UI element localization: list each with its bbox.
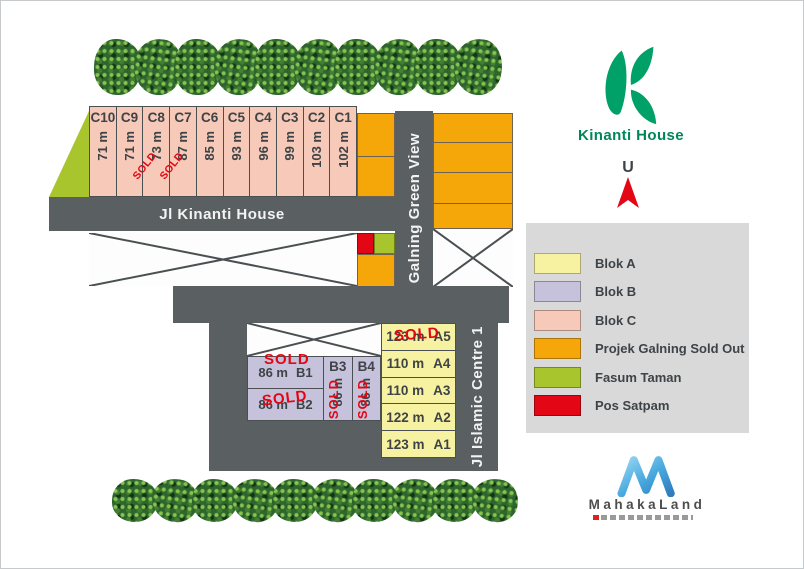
lot-size: 102 m xyxy=(336,131,351,168)
lot-size: 85 m xyxy=(202,131,217,161)
soldout-cell xyxy=(434,143,512,173)
lot-id: C3 xyxy=(281,110,298,125)
lot-id: C8 xyxy=(148,110,165,125)
lot-id: A3 xyxy=(433,383,450,398)
lot-id: A2 xyxy=(434,410,451,425)
lot-a1: 123 m A1 xyxy=(382,431,455,457)
lot-a5: 123 m A5 SOLD xyxy=(382,324,455,351)
lot-size: 103 m xyxy=(309,131,324,168)
lot-id: C4 xyxy=(254,110,271,125)
lot-c10: C10 71 m xyxy=(90,107,117,196)
road-kinanti-house: Jl Kinanti House xyxy=(49,197,395,231)
lot-id: C5 xyxy=(228,110,245,125)
soldout-corner-cell xyxy=(357,254,395,287)
legend-swatch-blok-c xyxy=(534,310,581,331)
legend-swatch-projek-galning xyxy=(534,338,581,359)
legend-label: Blok C xyxy=(595,313,636,328)
legend-item-blok-b: Blok B xyxy=(526,278,749,307)
galning-soldout-column xyxy=(433,113,513,229)
legend-panel: Blok A Blok B Blok C Projek Galning Sold… xyxy=(526,223,749,433)
lot-b1: 86 m B1 SOLD xyxy=(248,357,324,389)
lot-size: 71 m xyxy=(95,131,110,161)
lot-b3: B3 86 m SOLD xyxy=(324,357,353,420)
tree-icon xyxy=(470,476,521,524)
lot-a2: 122 m A2 xyxy=(382,404,455,431)
road-lower-band xyxy=(173,286,509,323)
lot-id: B4 xyxy=(358,359,375,374)
lot-size: 123 m xyxy=(386,437,424,452)
tree-icon xyxy=(451,36,505,97)
lot-size: 110 m xyxy=(387,356,425,371)
lot-size: 110 m xyxy=(387,383,425,398)
lot-id: A1 xyxy=(434,437,451,452)
lot-id: B3 xyxy=(329,359,346,374)
road-label: Jl Kinanti House xyxy=(159,206,285,223)
lot-b4: B4 86 m SOLD xyxy=(353,357,381,420)
road-label: Jl Galning Green View xyxy=(406,133,423,302)
tree-icon xyxy=(272,479,318,522)
north-label: U xyxy=(622,159,634,177)
lot-id: C2 xyxy=(308,110,325,125)
sold-stamp: SOLD xyxy=(326,379,341,419)
lot-c4: C4 96 m xyxy=(250,107,277,196)
road-label: Jl Islamic Centre 1 xyxy=(469,326,486,467)
mahaka-logo-text: MahakaLand xyxy=(589,497,706,512)
soldout-cell xyxy=(434,114,512,143)
mahaka-tagline xyxy=(601,515,693,520)
crossed-block-right xyxy=(433,229,513,287)
lot-id: C10 xyxy=(90,110,115,125)
mahakaland-logo: MahakaLand xyxy=(587,453,707,525)
sold-stamp: SOLD xyxy=(393,324,440,344)
lot-c3: C3 99 m xyxy=(277,107,304,196)
pos-satpam-area xyxy=(357,233,374,254)
legend-label: Projek Galning Sold Out xyxy=(595,341,745,356)
lot-size: 122 m xyxy=(386,410,424,425)
legend-label: Blok A xyxy=(595,256,636,271)
siteplan-canvas: C10 71 m C9 71 m C8 73 m SOLD C7 87 m SO… xyxy=(0,0,804,569)
lot-id: A4 xyxy=(433,356,450,371)
lot-a3: 110 m A3 xyxy=(382,378,455,405)
lot-size: 71 m xyxy=(122,131,137,161)
lot-c5: C5 93 m xyxy=(224,107,251,196)
legend-item-fasum-taman: Fasum Taman xyxy=(526,363,749,392)
legend-label: Fasum Taman xyxy=(595,370,681,385)
north-arrow-icon xyxy=(616,177,640,209)
road-left-stub xyxy=(209,323,247,471)
legend-swatch-blok-a xyxy=(534,253,581,274)
legend-swatch-fasum-taman xyxy=(534,367,581,388)
soldout-cell xyxy=(358,157,394,197)
tree-icon xyxy=(112,479,158,522)
road-under-blok-b xyxy=(247,421,381,471)
legend-item-blok-c: Blok C xyxy=(526,306,749,335)
blok-c-row: C10 71 m C9 71 m C8 73 m SOLD C7 87 m SO… xyxy=(89,106,357,197)
legend-item-projek-galning: Projek Galning Sold Out xyxy=(526,335,749,364)
soldout-cell xyxy=(434,204,512,231)
north-indicator: U xyxy=(608,159,648,215)
lot-size: 96 m xyxy=(256,131,271,161)
legend-label: Blok B xyxy=(595,284,636,299)
legend-item-blok-a: Blok A xyxy=(526,249,749,278)
lot-a4: 110 m A4 xyxy=(382,351,455,378)
soldout-cell xyxy=(358,114,394,157)
kinanti-leaf-k-icon xyxy=(592,43,670,127)
mahaka-m-icon xyxy=(614,453,680,497)
lot-id: C9 xyxy=(121,110,138,125)
road-islamic-centre: Jl Islamic Centre 1 xyxy=(456,323,498,471)
lot-c1: C1 102 m xyxy=(330,107,356,196)
lot-c6: C6 85 m xyxy=(197,107,224,196)
lot-c8: C8 73 m SOLD xyxy=(143,107,170,196)
sold-stamp: SOLD xyxy=(355,379,370,419)
crossed-block-left xyxy=(89,233,357,286)
legend-label: Pos Satpam xyxy=(595,398,669,413)
lot-c7: C7 87 m SOLD xyxy=(170,107,197,196)
legend-swatch-pos-satpam xyxy=(534,395,581,416)
tree-row-top xyxy=(94,39,504,97)
fasum-taman-small xyxy=(374,233,395,254)
lot-c2: C2 103 m xyxy=(304,107,331,196)
lot-size: 93 m xyxy=(229,131,244,161)
tree-icon xyxy=(352,479,398,522)
sold-stamp: SOLD xyxy=(264,351,310,368)
galning-soldout-strip xyxy=(357,113,395,197)
lot-id: C7 xyxy=(174,110,191,125)
fasum-taman-area xyxy=(49,111,89,197)
soldout-cell xyxy=(434,173,512,204)
lot-c9: C9 71 m xyxy=(117,107,144,196)
lot-id: C1 xyxy=(335,110,352,125)
blok-a-column: 123 m A5 SOLD 110 m A4 110 m A3 122 m A2… xyxy=(381,323,456,458)
tree-row-bottom xyxy=(112,479,514,523)
blok-b-grid: 86 m B1 SOLD 86 m B2 SOLD B3 86 m SOLD B… xyxy=(247,356,381,421)
tree-icon xyxy=(192,479,238,522)
tree-icon xyxy=(432,479,478,522)
kinanti-logo: Kinanti House xyxy=(561,43,701,148)
lot-size: 99 m xyxy=(282,131,297,161)
legend-swatch-blok-b xyxy=(534,281,581,302)
kinanti-logo-text: Kinanti House xyxy=(578,127,684,144)
lot-id: C6 xyxy=(201,110,218,125)
legend-item-pos-satpam: Pos Satpam xyxy=(526,392,749,421)
lot-b2: 86 m B2 SOLD xyxy=(248,389,324,420)
